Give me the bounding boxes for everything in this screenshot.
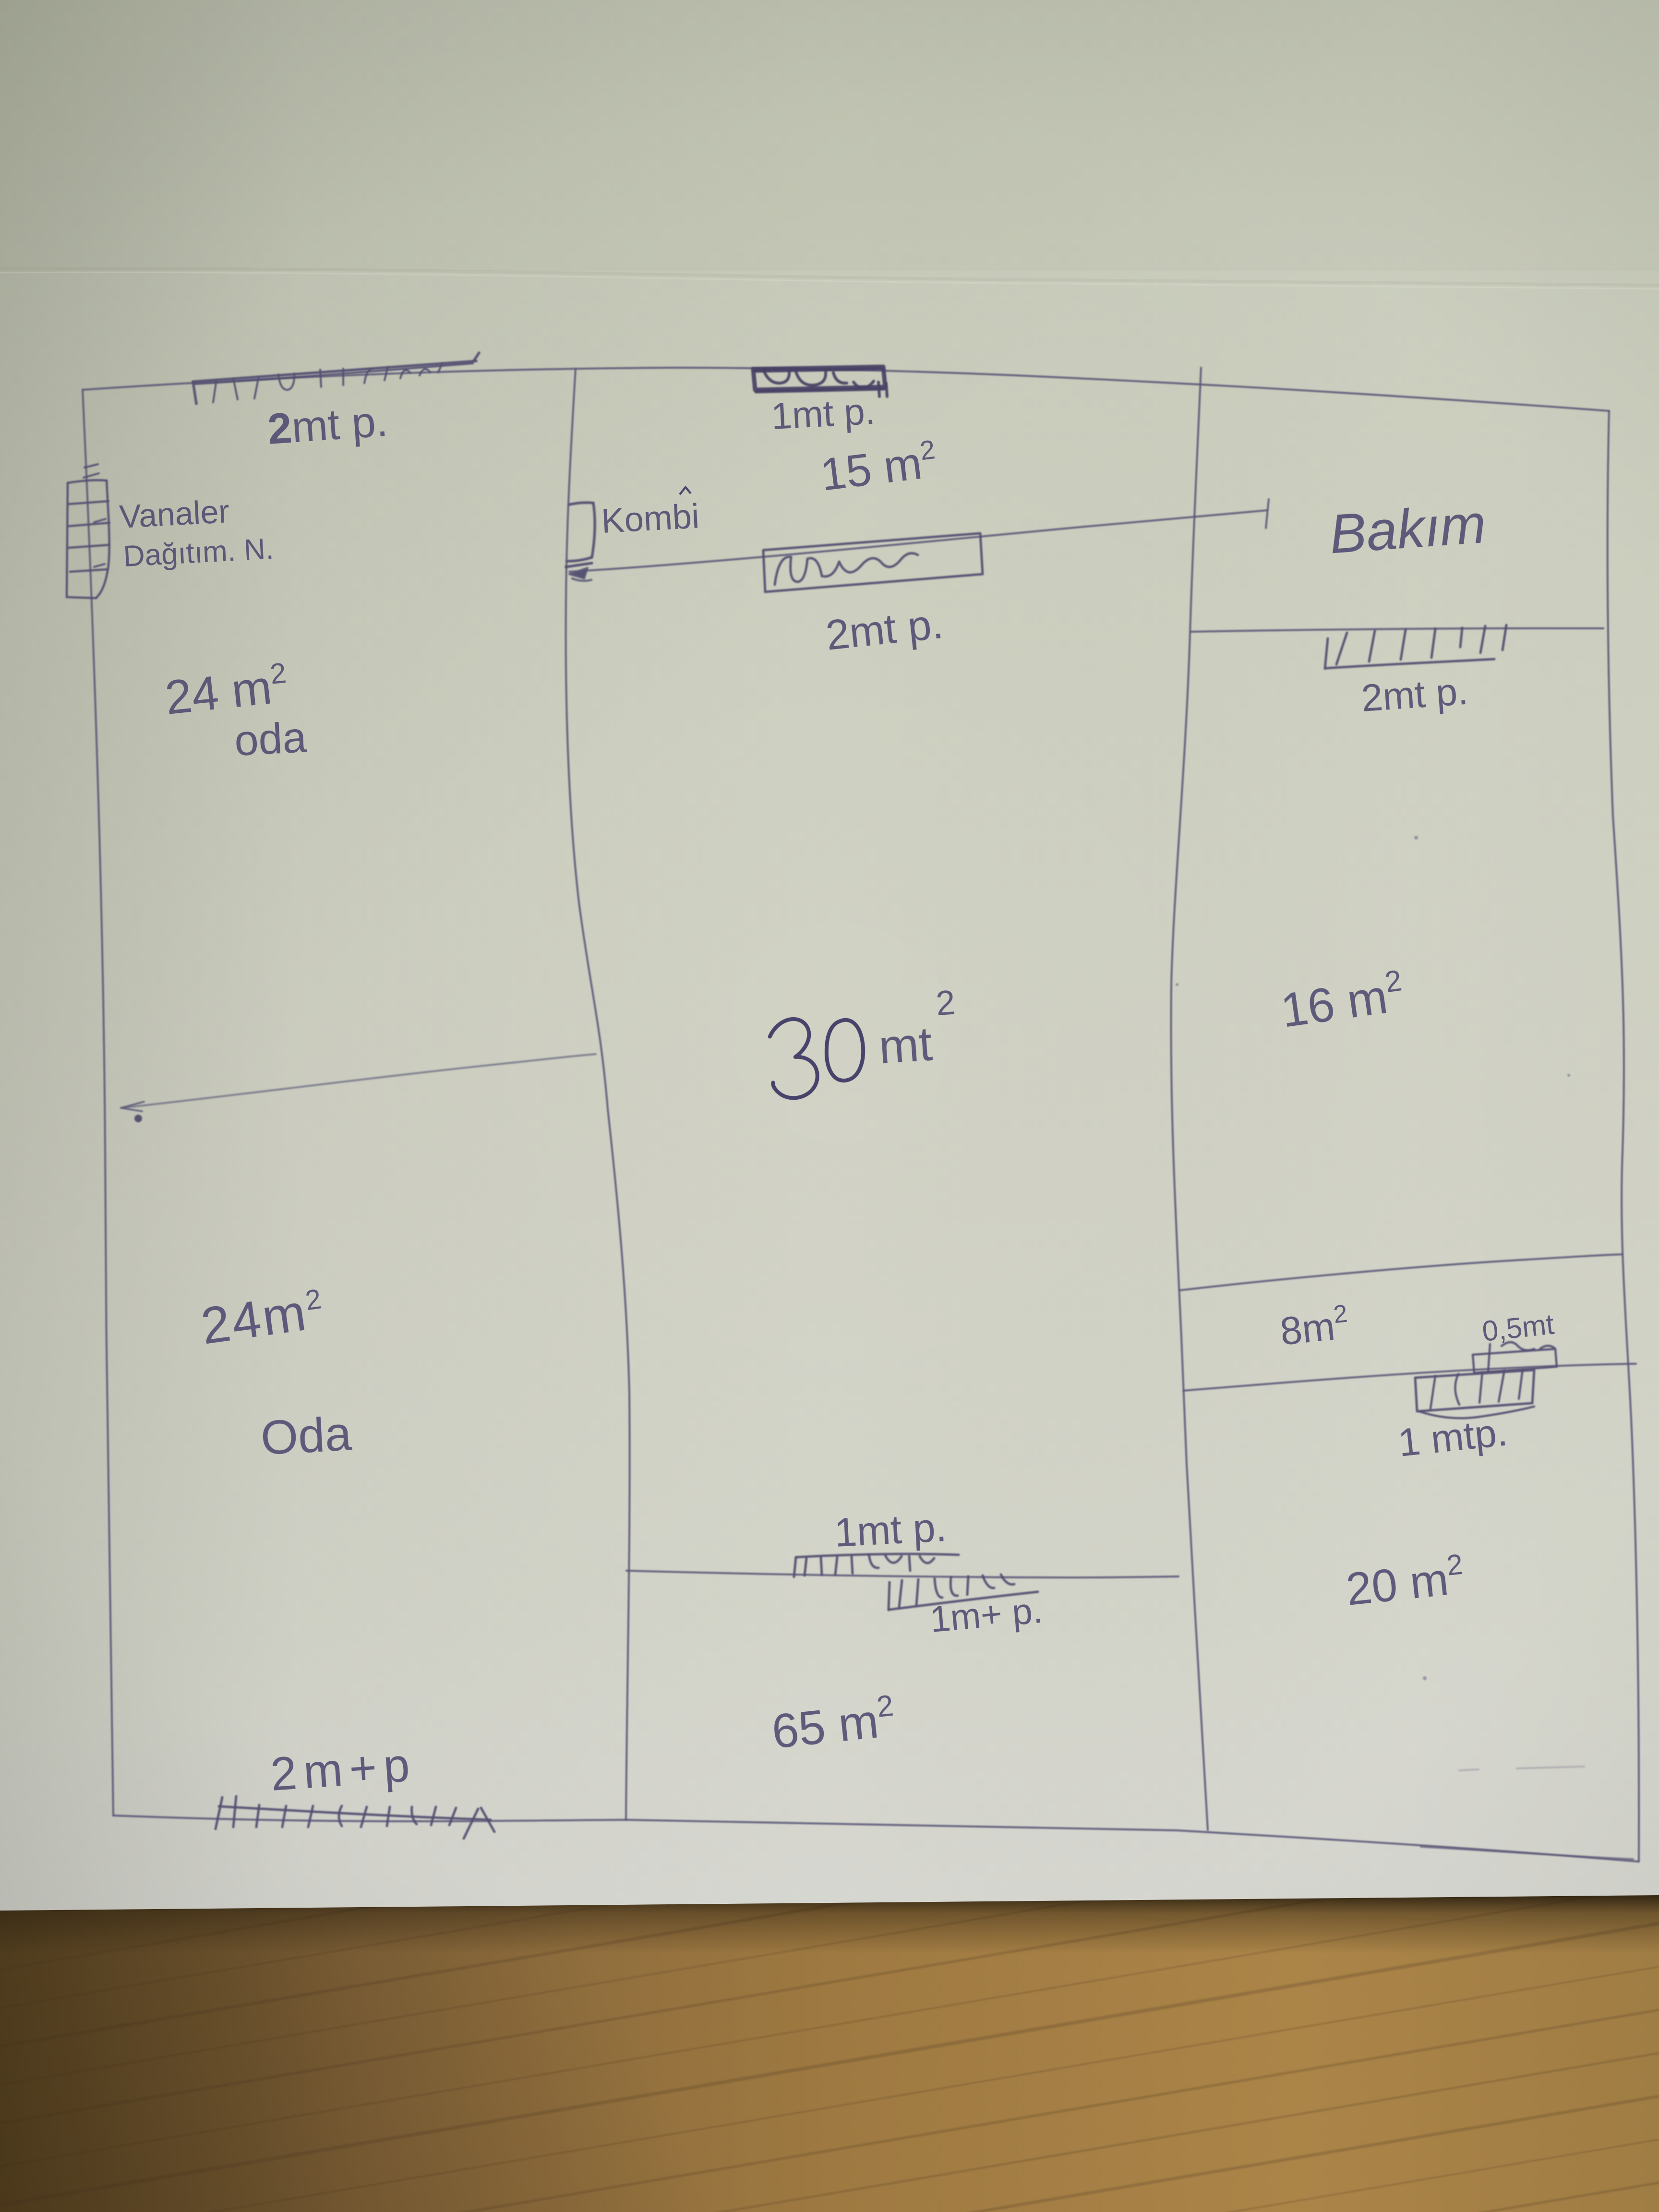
svg-text:2: 2 [935,984,957,1023]
svg-text:1mt p.: 1mt p. [833,1504,948,1555]
svg-text:oda: oda [233,713,308,765]
svg-text:Vanaler: Vanaler [119,493,230,535]
svg-text:2m+p: 2m+p [269,1738,418,1801]
svg-text:Kombi: Kombi [601,497,700,541]
svg-text:2mt p.: 2mt p. [266,397,389,454]
svg-text:1mt p.: 1mt p. [770,390,876,437]
svg-text:mt: mt [877,1017,934,1074]
svg-text:Bakım: Bakım [1327,493,1488,565]
svg-text:2mt p.: 2mt p. [1360,670,1469,720]
svg-text:Oda: Oda [259,1407,353,1465]
